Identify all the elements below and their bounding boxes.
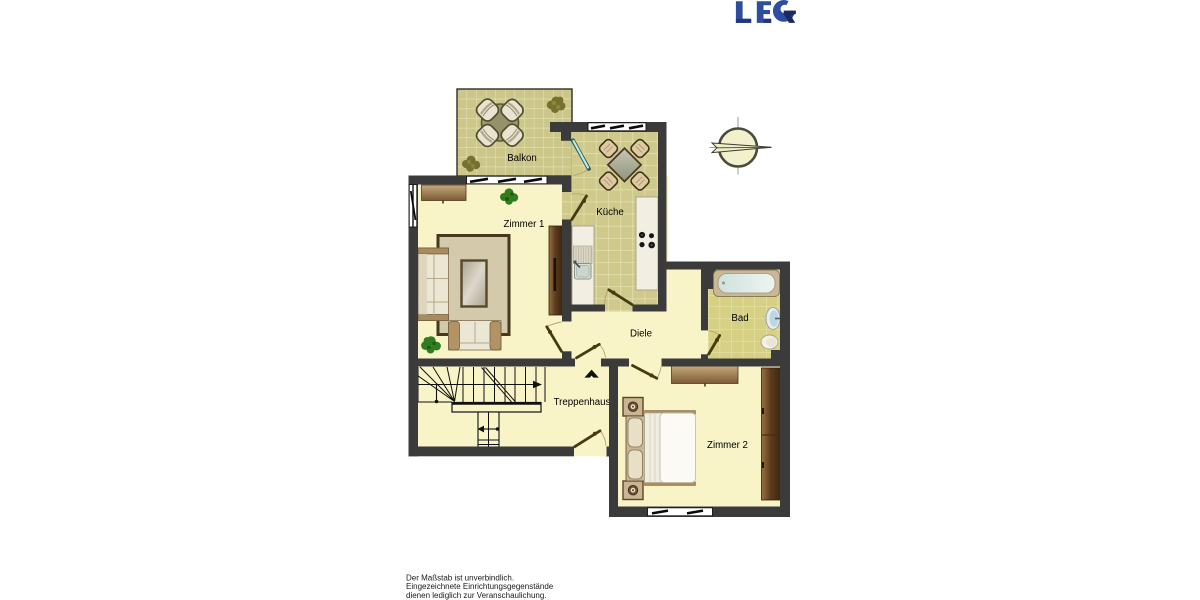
svg-text:Zimmer 2: Zimmer 2 xyxy=(707,440,748,451)
svg-text:Diele: Diele xyxy=(630,329,652,340)
svg-text:Küche: Küche xyxy=(596,207,623,218)
svg-text:Der Maßstab ist unverbindlich.: Der Maßstab ist unverbindlich. xyxy=(406,574,514,583)
svg-text:Zimmer 1: Zimmer 1 xyxy=(504,219,545,230)
svg-text:dienen lediglich zur Veranscha: dienen lediglich zur Veranschaulichung. xyxy=(406,591,547,600)
svg-text:Eingezeichnete Einrichtungsgeg: Eingezeichnete Einrichtungsgegenstände xyxy=(406,582,554,591)
svg-text:Bad: Bad xyxy=(731,313,748,324)
svg-text:Balkon: Balkon xyxy=(507,153,537,164)
svg-text:Treppenhaus: Treppenhaus xyxy=(554,397,611,408)
